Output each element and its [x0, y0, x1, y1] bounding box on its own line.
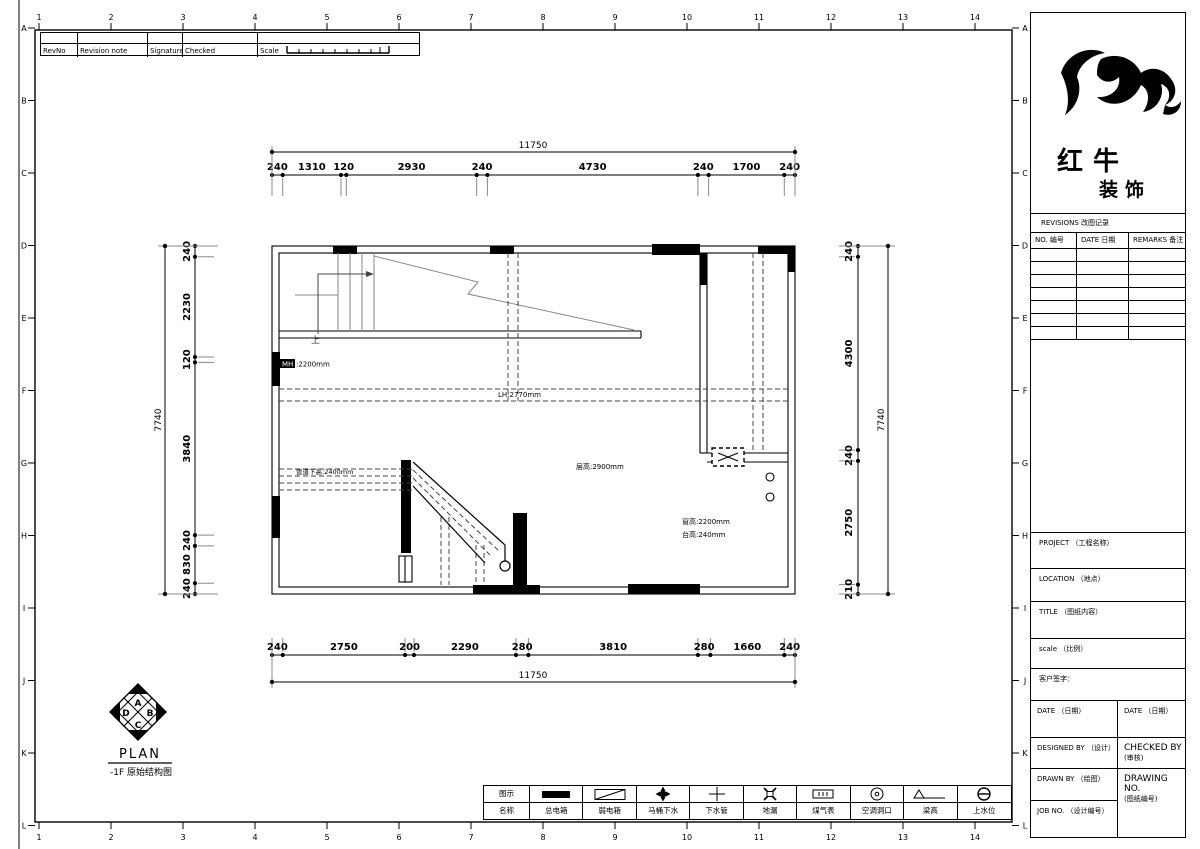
checked-header: Checked — [183, 43, 258, 57]
grid-number-top: 12 — [826, 13, 836, 22]
grid-number-bottom: 12 — [826, 833, 836, 842]
drain-pipe-icon — [690, 786, 743, 803]
dimension-label: 280 — [694, 642, 715, 653]
grid-number-top: 13 — [898, 13, 908, 22]
client-signature-field: 客户签字： — [1031, 669, 1185, 701]
grid-number-top: 3 — [180, 13, 185, 22]
stair-up-arrow — [318, 271, 374, 334]
revisions-empty-row — [1031, 262, 1185, 275]
grid-number-top: 10 — [682, 13, 692, 22]
stair-up-label: 上 — [311, 335, 320, 346]
dimension-chain: 24043002402750210 — [839, 241, 860, 600]
revisions-col-no: NO. 编号 — [1031, 233, 1077, 249]
beam-height-icon — [904, 786, 957, 803]
grid-number-bottom: 7 — [468, 833, 473, 842]
company-logo-box: 红牛 装饰 — [1031, 13, 1185, 214]
legend-item-name: 煤气表 — [797, 803, 850, 820]
revisions-empty-row — [1031, 275, 1185, 288]
revision-note-header: Revision note — [78, 43, 148, 57]
dimension-label: 240 — [693, 162, 714, 173]
revisions-empty-row — [1031, 314, 1185, 327]
grid-number-top: 11 — [754, 13, 764, 22]
location-field: LOCATION （地点） — [1031, 569, 1185, 602]
grid-letter-left: F — [22, 387, 27, 396]
dimension-label: 120 — [182, 349, 193, 370]
legend-row2-header: 名称 — [484, 803, 530, 820]
title-block-footer: DATE （日期） DATE （日期） DESIGNED BY （设计） CHE… — [1031, 701, 1185, 837]
stair-top-left — [295, 253, 634, 331]
grid-letter-right: K — [1022, 749, 1028, 758]
overall-dim-right: 7740 — [877, 408, 887, 431]
plan-title: PLAN — [119, 747, 161, 762]
revisions-empty-row — [1031, 249, 1185, 262]
revision-strip-table: RevNo Revision note Signature Checked Sc… — [40, 32, 420, 56]
dimension-label: 1310 — [298, 162, 326, 173]
revisions-title: REVISIONS 改图记录 — [1031, 214, 1185, 233]
grid-letter-right: C — [1022, 169, 1028, 178]
date-left-field: DATE （日期） — [1031, 701, 1118, 738]
ramp-lower-stair — [413, 462, 510, 571]
dimension-label: 2230 — [182, 293, 193, 321]
grid-letter-left: J — [22, 677, 25, 686]
compass-letter-c: C — [135, 721, 142, 731]
pipe-clearance-label: 管道下高:2400mm — [296, 467, 353, 476]
revisions-empty-row — [1031, 288, 1185, 301]
dimension-label: 120 — [333, 162, 354, 173]
grid-letter-right: E — [1022, 314, 1027, 323]
toilet-drain-icon — [637, 786, 690, 803]
grid-letter-left: I — [23, 604, 25, 613]
dimension-label: 210 — [844, 579, 855, 600]
dimension-label: 4730 — [579, 162, 607, 173]
dimension-label: 240 — [779, 642, 800, 653]
dimension-label: 240 — [267, 162, 288, 173]
legend-row1-header: 图示 — [484, 786, 530, 803]
overall-dim-left: 7740 — [154, 408, 164, 431]
title-block-blank-area — [1031, 340, 1185, 533]
legend-item-name: 马桶下水 — [637, 803, 690, 820]
grid-letter-right: H — [1022, 532, 1028, 541]
scale-field: scale （比例） — [1031, 639, 1185, 669]
revisions-col-date: DATE 日期 — [1077, 233, 1129, 249]
title-block: 红牛 装饰 REVISIONS 改图记录 NO. 编号 DATE 日期 REMA… — [1030, 12, 1186, 838]
grid-number-bottom: 5 — [324, 833, 329, 842]
dimension-label: 4300 — [844, 339, 855, 367]
dimension-label: 240 — [844, 445, 855, 466]
grid-letter-right: A — [1022, 24, 1028, 33]
grid-number-bottom: 10 — [682, 833, 692, 842]
legend-item-name: 空调洞口 — [851, 803, 904, 820]
compass-letter-d: D — [122, 709, 129, 719]
date-right-field: DATE （日期） — [1118, 701, 1185, 738]
grid-number-bottom: 14 — [970, 833, 980, 842]
low-voltage-box-icon — [583, 786, 636, 803]
grid-number-bottom: 13 — [898, 833, 908, 842]
compass-letter-a: A — [135, 699, 142, 709]
dimension-label: 200 — [399, 642, 420, 653]
dimension-label: 240 — [182, 578, 193, 599]
grid-letter-left: K — [21, 749, 27, 758]
dimension-label: 3810 — [599, 642, 627, 653]
grid-number-bottom: 11 — [754, 833, 764, 842]
grid-letter-right: L — [1023, 822, 1028, 831]
grid-number-bottom: 6 — [396, 833, 401, 842]
drawn-by-field: DRAWN BY （绘图） — [1031, 769, 1118, 801]
mh-label-prefix: MH — [282, 361, 293, 369]
grid-letter-left: B — [21, 97, 27, 106]
legend-table: 图示 名称 总电箱 弱电箱 马桶下水 下水管 地漏 煤气表 空调洞口 梁高 上水… — [483, 785, 1012, 820]
floor-plan-canvas: 11223344556677889910101111121213131414AA… — [0, 0, 1200, 849]
overall-dimensions — [158, 146, 895, 688]
grid-number-bottom: 4 — [252, 833, 257, 842]
lh-label: LH:2770mm — [498, 391, 541, 399]
dimension-label: 2930 — [398, 162, 426, 173]
grid-number-top: 4 — [252, 13, 257, 22]
storey-height-label: 层高:2900mm — [576, 462, 624, 471]
grid-letter-left: E — [21, 314, 26, 323]
dimension-label: 3840 — [182, 435, 193, 463]
main-power-box-icon — [530, 786, 583, 803]
grid-letter-left: C — [21, 169, 27, 178]
grid-letter-right: J — [1023, 677, 1026, 686]
legend-item-name: 梁高 — [904, 803, 957, 820]
dimension-label: 240 — [472, 162, 493, 173]
drawing-sheet: 11223344556677889910101111121213131414AA… — [0, 0, 1200, 849]
dimension-chain: 24022301203840240830240 — [182, 241, 214, 599]
legend-item-name: 地漏 — [744, 803, 797, 820]
grid-letter-left: G — [21, 459, 27, 468]
floor-drain-icon — [744, 786, 797, 803]
dimension-label: 2290 — [451, 642, 479, 653]
grid-number-top: 7 — [468, 13, 473, 22]
dimension-label: 240 — [182, 241, 193, 262]
checked-by-field: CHECKED BY(审核) — [1118, 738, 1185, 769]
grid-letter-right: I — [1024, 604, 1026, 613]
grid-letter-left: A — [21, 24, 27, 33]
sill-height-label: 台高:240mm — [682, 530, 726, 539]
grid-number-bottom: 2 — [108, 833, 113, 842]
dimension-label: 2750 — [844, 509, 855, 537]
grid-letter-right: D — [1022, 242, 1028, 251]
grid-number-top: 2 — [108, 13, 113, 22]
grid-number-top: 14 — [970, 13, 980, 22]
scale-bar-icon — [285, 45, 391, 56]
signature-header: Signature — [148, 43, 183, 57]
grid-number-top: 1 — [36, 13, 41, 22]
water-supply-icon — [958, 786, 1011, 803]
grid-number-top: 5 — [324, 13, 329, 22]
designed-by-field: DESIGNED BY （设计） — [1031, 738, 1118, 769]
grid-letter-right: G — [1022, 459, 1028, 468]
brand-name-bottom: 装饰 — [1099, 175, 1151, 202]
dimension-label: 240 — [844, 241, 855, 262]
revisions-col-remarks: REMARKS 备注 — [1129, 233, 1185, 249]
grid-number-top: 6 — [396, 13, 401, 22]
grid-letter-left: H — [21, 532, 27, 541]
dimension-chain: 2401310120293024047302401700240 — [267, 162, 800, 196]
dimension-label: 240 — [182, 530, 193, 551]
dimension-label: 240 — [267, 642, 288, 653]
grid-letter-left: D — [21, 242, 27, 251]
grid-number-bottom: 1 — [36, 833, 41, 842]
job-no-field: JOB NO. （设计编号） — [1031, 801, 1118, 837]
grid-letter-right: F — [1023, 387, 1028, 396]
revisions-empty-row — [1031, 327, 1185, 339]
overall-dim-top: 11750 — [519, 141, 548, 151]
grid-letter-left: L — [22, 822, 27, 831]
ac-opening-icon — [851, 786, 904, 803]
dimension-label: 1700 — [733, 162, 761, 173]
mh-label-value: :2200mm — [296, 361, 330, 369]
grid-number-bottom: 9 — [612, 833, 617, 842]
dimension-label: 280 — [512, 642, 533, 653]
window-height-label: 窗高:2200mm — [682, 517, 730, 526]
drawing-no-field: DRAWING NO.(图纸编号) — [1118, 769, 1185, 837]
grid-number-top: 9 — [612, 13, 617, 22]
dimension-label: 830 — [182, 554, 193, 575]
legend-item-name: 总电箱 — [530, 803, 583, 820]
title-field: TITLE （图纸内容） — [1031, 602, 1185, 639]
overall-dim-bottom: 11750 — [519, 671, 548, 681]
dimension-chain: 2402750200229028038102801660240 — [267, 638, 800, 657]
ac-opening-symbol — [712, 448, 744, 466]
legend-item-name: 下水管 — [690, 803, 743, 820]
scale-label: Scale — [260, 47, 279, 55]
gas-meter-icon — [797, 786, 850, 803]
compass-letter-b: B — [147, 709, 154, 719]
grid-number-top: 8 — [540, 13, 545, 22]
grid-letter-right: B — [1022, 97, 1028, 106]
compass-rose — [110, 684, 166, 740]
legend-item-name: 上水位 — [958, 803, 1011, 820]
dimension-label: 240 — [779, 162, 800, 173]
grid-number-bottom: 3 — [180, 833, 185, 842]
dimension-label: 1660 — [733, 642, 761, 653]
revisions-empty-row — [1031, 301, 1185, 314]
bull-swoosh-logo-icon — [1031, 21, 1185, 146]
sheet-frame — [19, 0, 1012, 849]
brand-name-top: 红牛 — [1057, 141, 1129, 178]
revno-header: RevNo — [41, 43, 78, 57]
plan-subtitle: -1F 原始结构图 — [110, 766, 172, 778]
revisions-table: REVISIONS 改图记录 NO. 编号 DATE 日期 REMARKS 备注 — [1031, 214, 1185, 340]
dimension-label: 2750 — [330, 642, 358, 653]
grid-number-bottom: 8 — [540, 833, 545, 842]
legend-item-name: 弱电箱 — [583, 803, 636, 820]
project-field: PROJECT （工程名称） — [1031, 533, 1185, 569]
